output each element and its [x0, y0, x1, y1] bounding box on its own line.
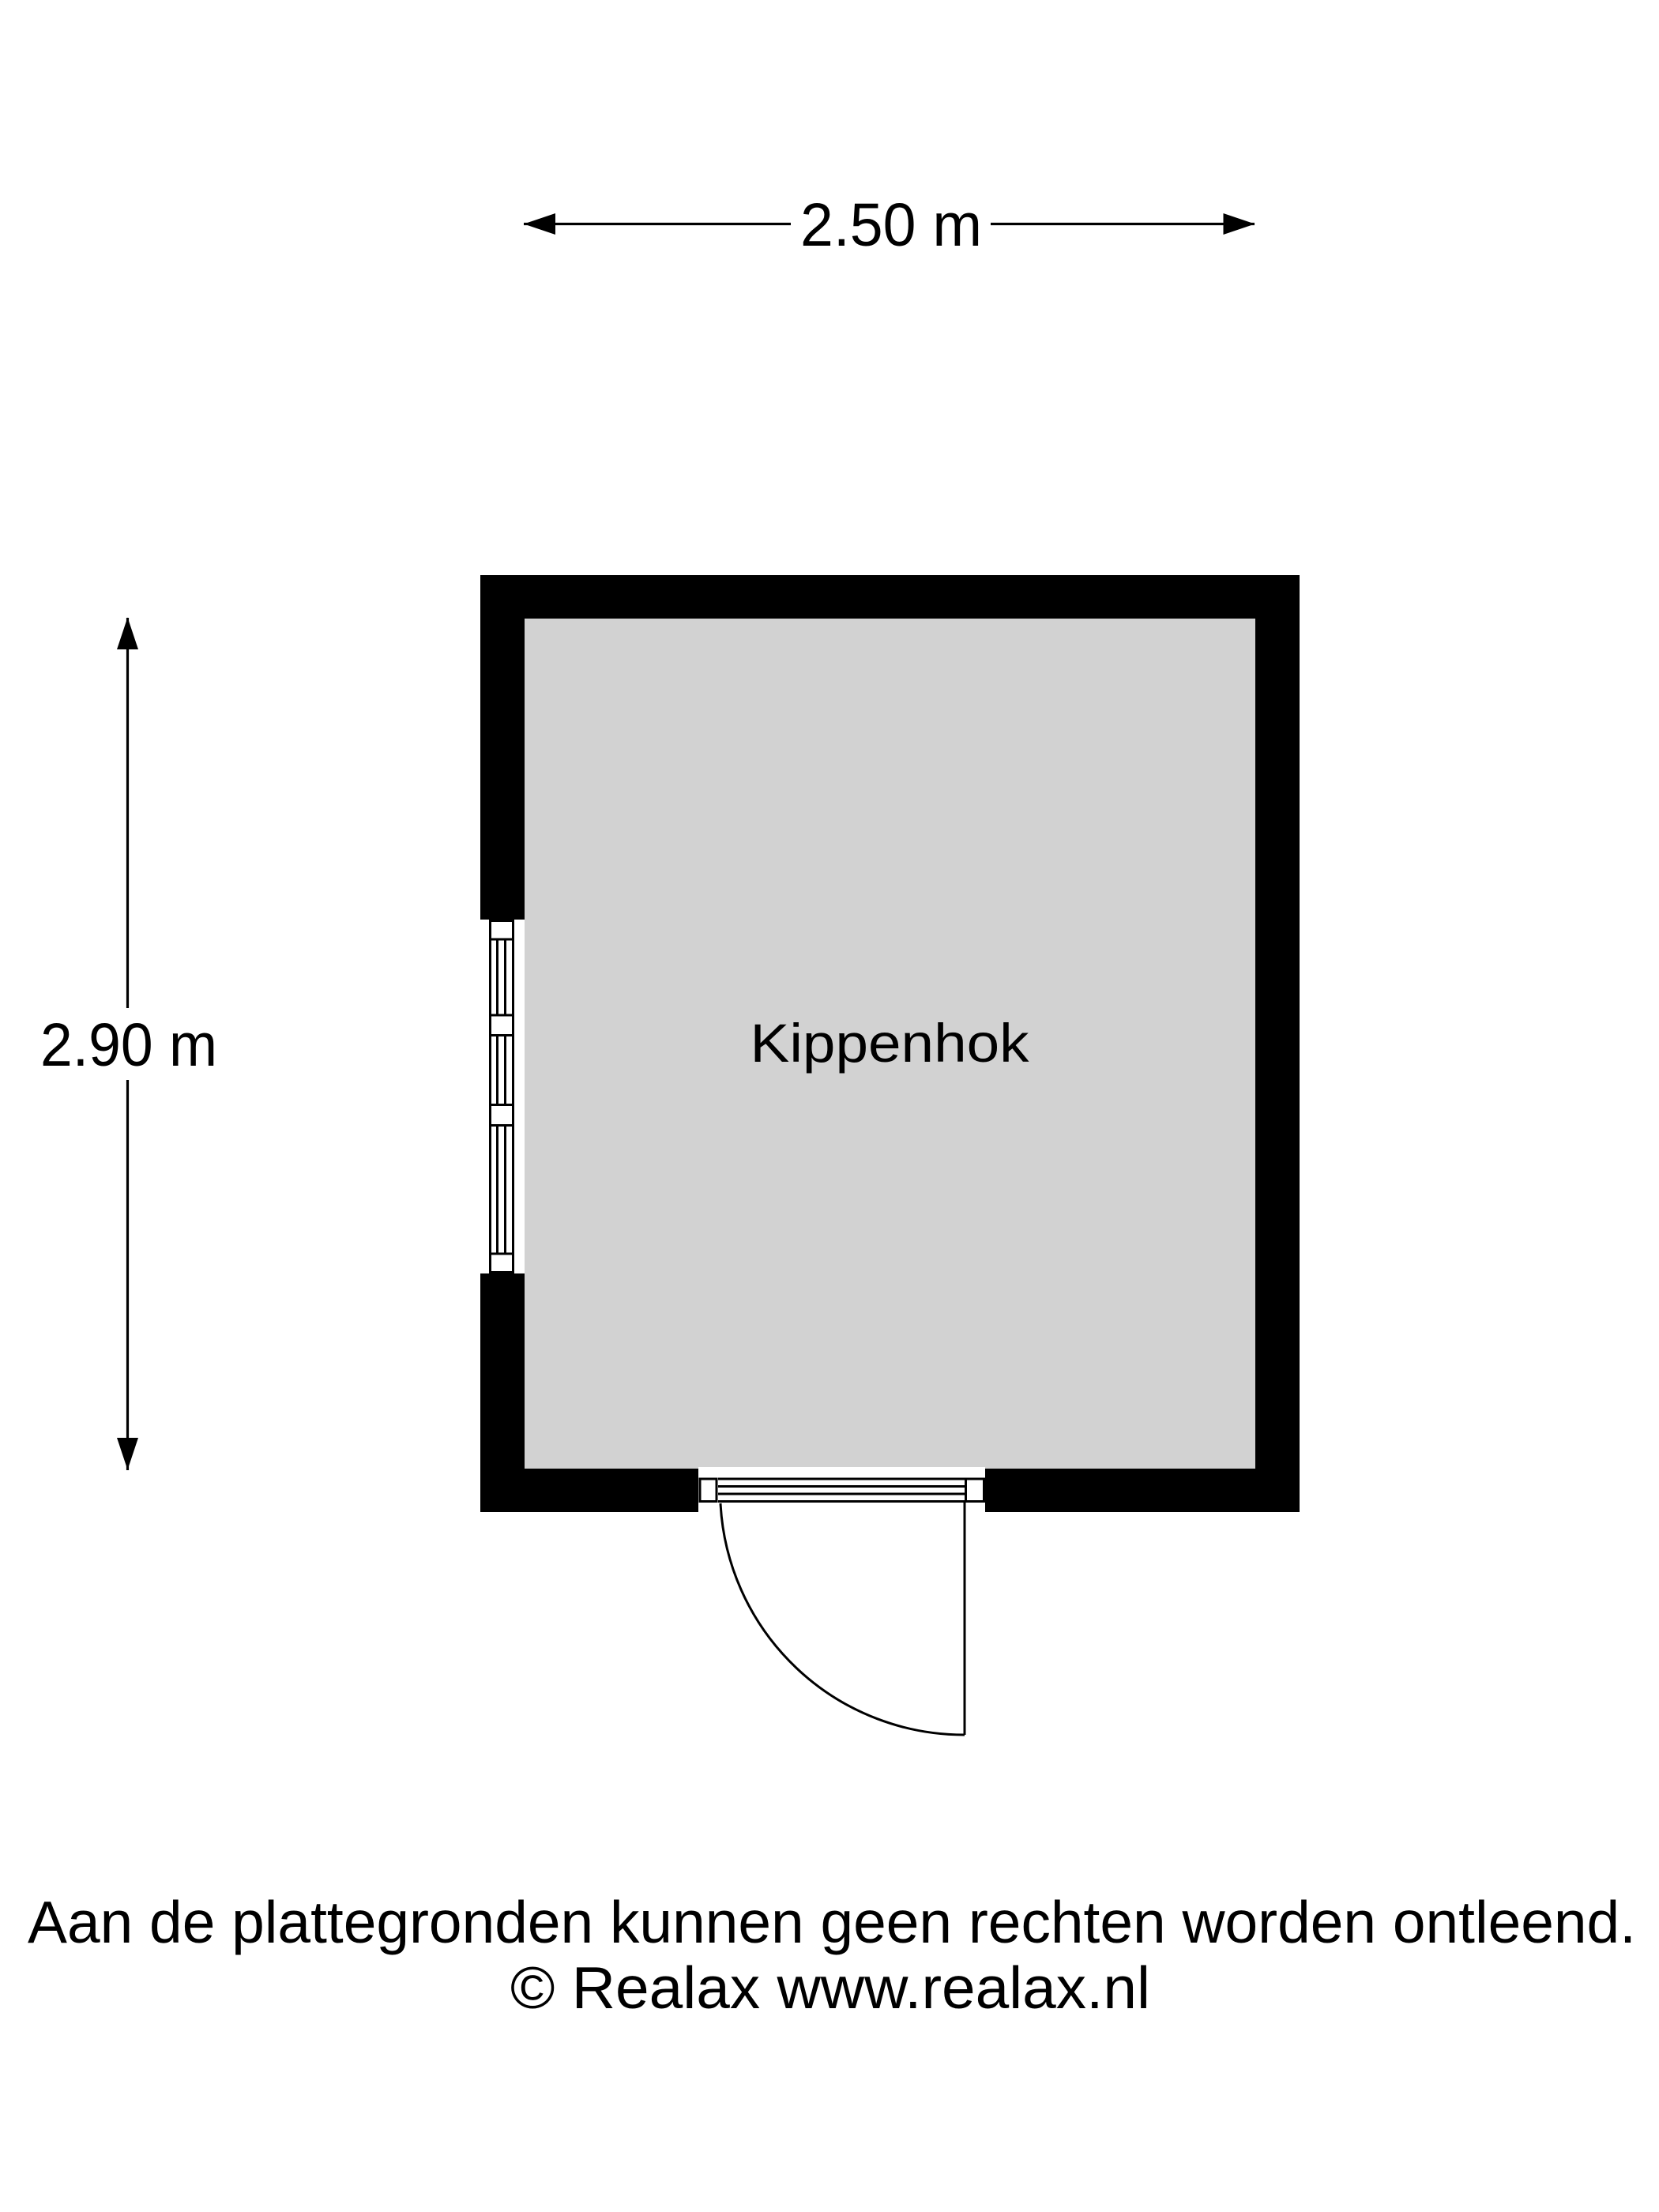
svg-text:Aan de plattegronden kunnen ge: Aan de plattegronden kunnen geen rechten…: [28, 1889, 1636, 1955]
svg-text:2.50 m: 2.50 m: [800, 191, 982, 259]
svg-text:© Realax www.realax.nl: © Realax www.realax.nl: [510, 1954, 1150, 2021]
svg-text:Kippenhok: Kippenhok: [750, 1013, 1030, 1074]
svg-text:2.90 m: 2.90 m: [40, 1011, 217, 1079]
